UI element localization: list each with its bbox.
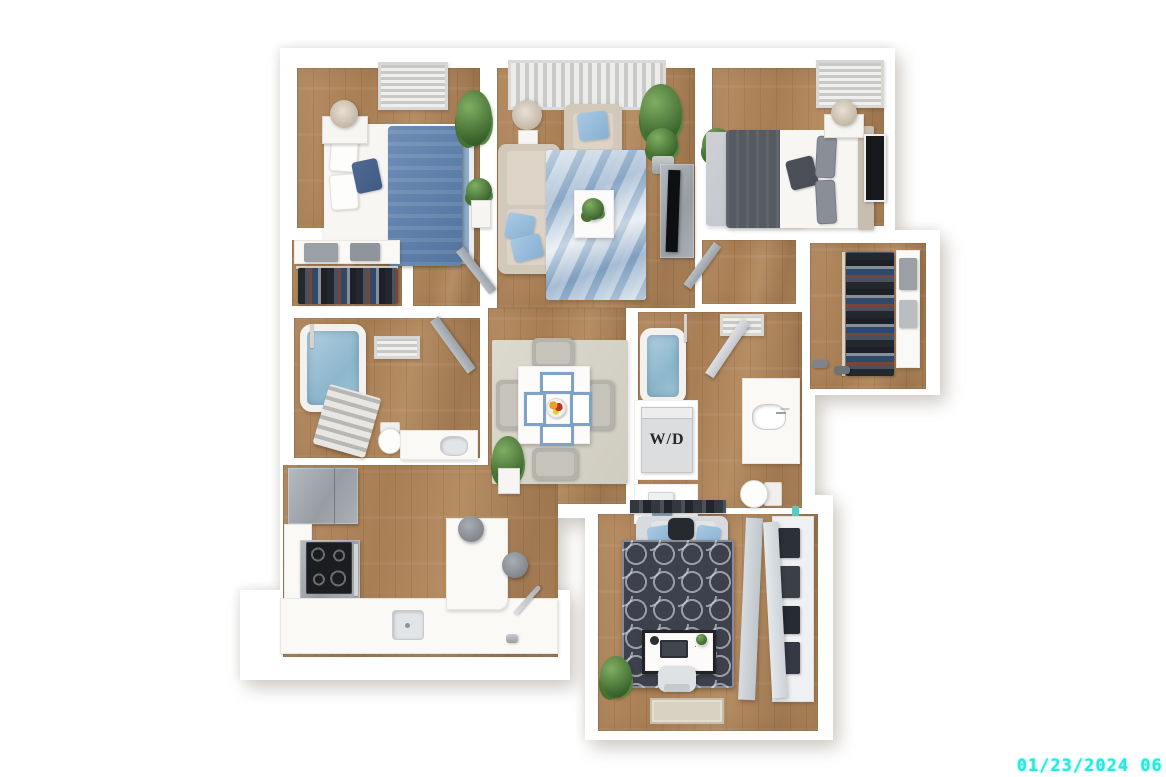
den-closet-item xyxy=(778,528,800,558)
bedroom-1-table-lamp xyxy=(330,100,358,128)
bathroom-1-toilet xyxy=(378,428,402,454)
walk-in-closet-shoes xyxy=(834,366,850,374)
washer-dryer-unit: W/D xyxy=(641,407,693,473)
kitchen-stool xyxy=(458,516,484,542)
desk-plant xyxy=(696,634,707,645)
den-dark-object xyxy=(668,518,694,540)
bathroom-2-faucet xyxy=(776,412,786,414)
office-chair-back xyxy=(664,684,690,692)
bathroom-2-toilet xyxy=(740,480,768,508)
floor-plan-render: W/D xyxy=(0,0,1166,777)
laptop xyxy=(660,640,688,658)
den-bifold-door xyxy=(738,518,763,701)
furniture-layer: W/D xyxy=(0,0,1166,777)
placemat xyxy=(540,424,574,446)
desk-lamp xyxy=(650,636,659,645)
walk-in-closet-rod xyxy=(842,252,845,376)
bedroom-1-ceiling-vent xyxy=(378,62,448,110)
coffee-table-plant xyxy=(582,198,604,220)
closet-1-storage-box xyxy=(304,243,338,262)
kitchen-stool xyxy=(502,552,528,578)
kitchen-faucet-base xyxy=(506,634,518,643)
bathroom-2-bathtub xyxy=(640,328,686,404)
walk-in-closet-bin xyxy=(899,300,917,328)
cooktop xyxy=(306,542,352,594)
bedroom-2-table-lamp xyxy=(831,100,857,126)
bedroom-1-plant-tall xyxy=(456,90,492,146)
bedroom-2-gray-blanket xyxy=(726,130,780,228)
closet-1-hanging-clothes xyxy=(298,268,398,304)
fruit-bowl xyxy=(546,398,566,418)
dining-chair-south xyxy=(532,448,578,480)
timestamp-overlay: 01/23/2024 06: xyxy=(1017,756,1166,776)
dining-chair-north xyxy=(532,338,574,368)
bedroom-2-wall-art xyxy=(864,134,886,202)
living-room-armchair-pillow xyxy=(577,111,610,142)
bathroom-1-door xyxy=(430,316,476,374)
walk-in-closet-hanging-clothes xyxy=(846,252,894,376)
bathroom-2-sink xyxy=(752,404,786,430)
oven-handle xyxy=(354,544,358,596)
placemat xyxy=(540,372,574,394)
entry-doormat xyxy=(650,698,724,724)
bathroom-1-shower-pole xyxy=(310,324,314,348)
bedroom-2-pillow xyxy=(815,136,837,179)
kitchen-sink xyxy=(392,610,424,640)
bathroom-2-shower-pole xyxy=(684,314,687,342)
placemat xyxy=(570,392,592,426)
living-room-floor-lamp xyxy=(512,100,542,130)
bathroom-1-ceiling-vent xyxy=(374,336,420,359)
walk-in-closet-bin xyxy=(899,258,917,290)
closet-1-storage-box xyxy=(350,243,380,261)
dining-plant-stand xyxy=(498,468,520,494)
placemat xyxy=(524,392,546,426)
den-wall-shelf xyxy=(630,500,726,513)
refrigerator xyxy=(288,468,358,524)
bedroom-1-door xyxy=(456,246,496,294)
bedroom-1-plant-stand xyxy=(471,200,491,228)
den-plant xyxy=(600,656,632,698)
washer-dryer-label: W/D xyxy=(642,408,692,472)
bedroom-2-pillow xyxy=(815,180,837,225)
walk-in-closet-shoes xyxy=(812,360,828,368)
bathroom-1-sink xyxy=(440,436,468,456)
